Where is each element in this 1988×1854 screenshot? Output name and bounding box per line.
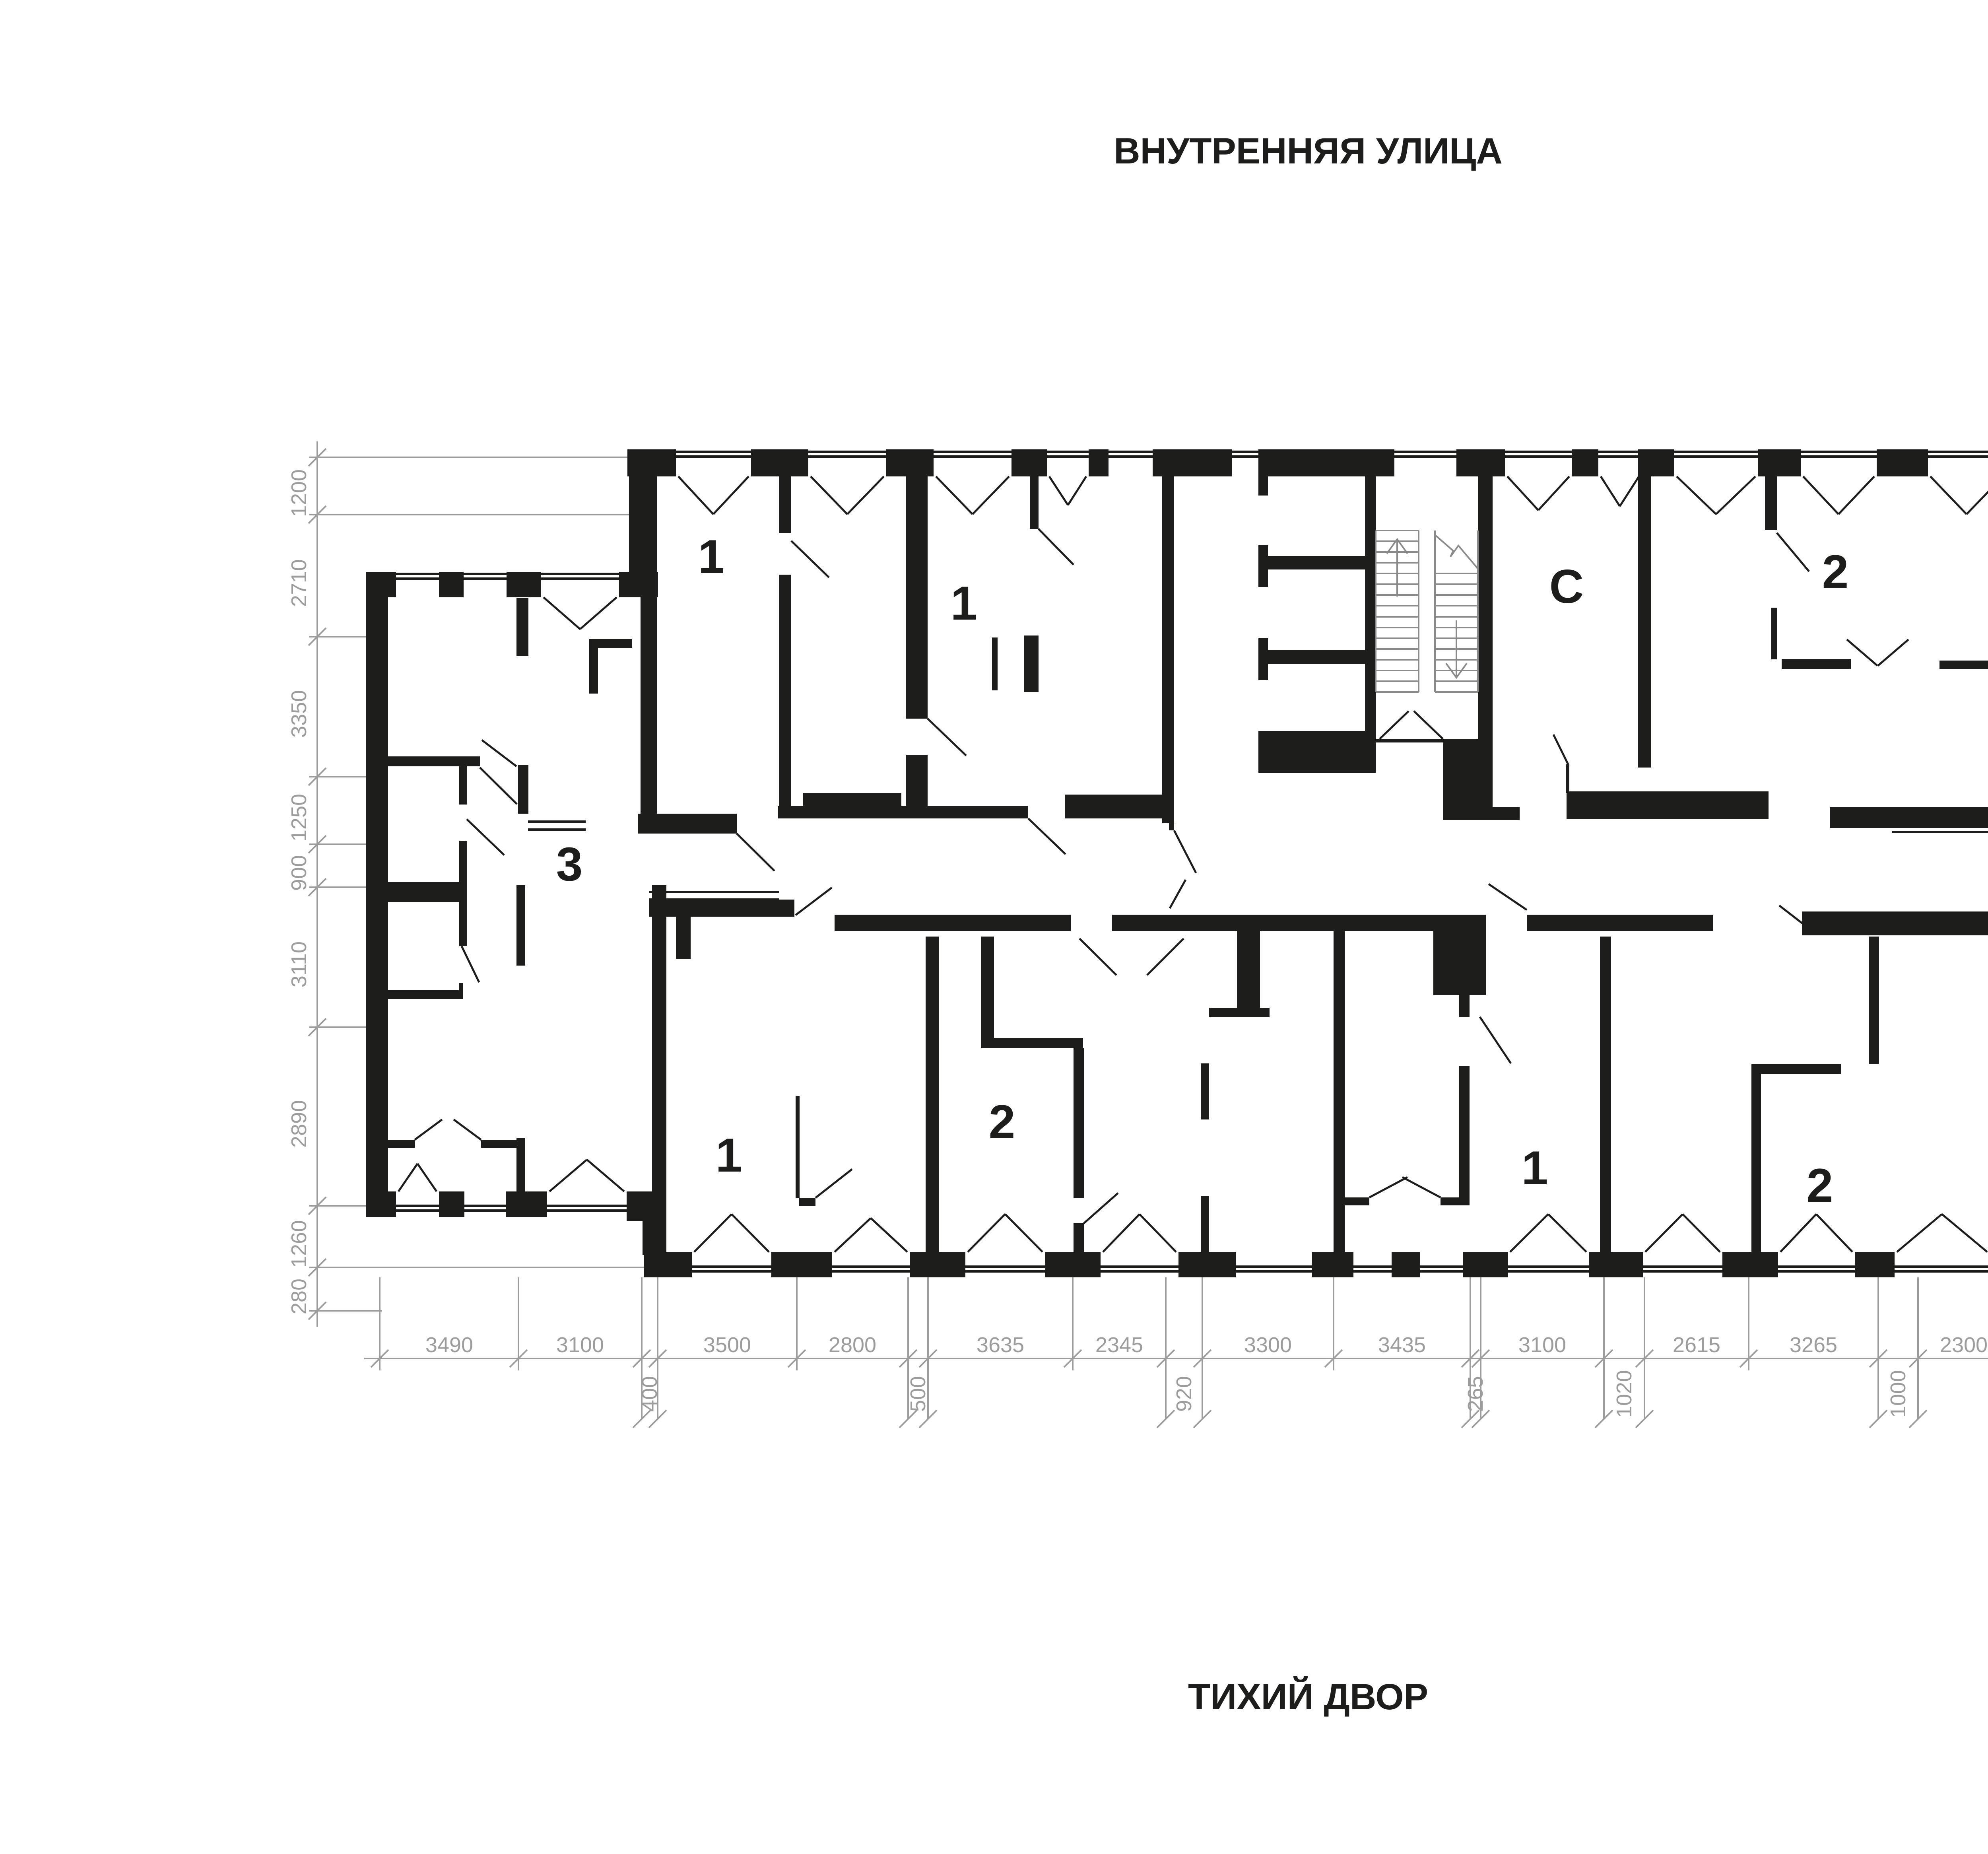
- svg-text:3435: 3435: [1378, 1333, 1426, 1357]
- svg-text:2: 2: [1822, 545, 1849, 599]
- svg-text:900: 900: [287, 855, 311, 891]
- svg-text:280: 280: [287, 1279, 311, 1314]
- svg-text:2: 2: [989, 1095, 1015, 1149]
- svg-text:1: 1: [698, 530, 725, 583]
- svg-text:3300: 3300: [1244, 1333, 1292, 1357]
- svg-text:3: 3: [556, 838, 583, 891]
- svg-text:2615: 2615: [1673, 1333, 1720, 1357]
- svg-text:500: 500: [906, 1376, 930, 1412]
- svg-text:3635: 3635: [977, 1333, 1024, 1357]
- svg-text:1: 1: [951, 577, 977, 630]
- svg-text:2890: 2890: [287, 1100, 311, 1148]
- svg-text:2: 2: [1807, 1159, 1833, 1212]
- svg-text:3500: 3500: [703, 1333, 751, 1357]
- svg-text:2300: 2300: [1940, 1333, 1988, 1357]
- svg-text:3100: 3100: [1518, 1333, 1566, 1357]
- svg-text:2345: 2345: [1095, 1333, 1143, 1357]
- svg-text:3100: 3100: [556, 1333, 604, 1357]
- svg-text:1250: 1250: [287, 794, 311, 841]
- svg-text:ВНУТРЕННЯЯ УЛИЦА: ВНУТРЕННЯЯ УЛИЦА: [1114, 131, 1503, 171]
- svg-text:1020: 1020: [1612, 1370, 1636, 1418]
- svg-text:3350: 3350: [287, 690, 311, 738]
- svg-text:1: 1: [716, 1129, 742, 1182]
- svg-text:3490: 3490: [425, 1333, 473, 1357]
- svg-text:2800: 2800: [829, 1333, 876, 1357]
- svg-text:1260: 1260: [287, 1220, 311, 1268]
- svg-text:ТИХИЙ ДВОР: ТИХИЙ ДВОР: [1188, 1676, 1428, 1717]
- svg-text:3265: 3265: [1790, 1333, 1837, 1357]
- svg-text:3110: 3110: [287, 941, 311, 987]
- svg-text:920: 920: [1172, 1376, 1196, 1412]
- svg-text:1200: 1200: [287, 469, 311, 517]
- svg-text:2710: 2710: [287, 559, 311, 607]
- svg-text:С: С: [1549, 560, 1584, 613]
- svg-text:1: 1: [1522, 1141, 1548, 1195]
- svg-text:265: 265: [1464, 1376, 1487, 1412]
- svg-text:1000: 1000: [1886, 1370, 1910, 1418]
